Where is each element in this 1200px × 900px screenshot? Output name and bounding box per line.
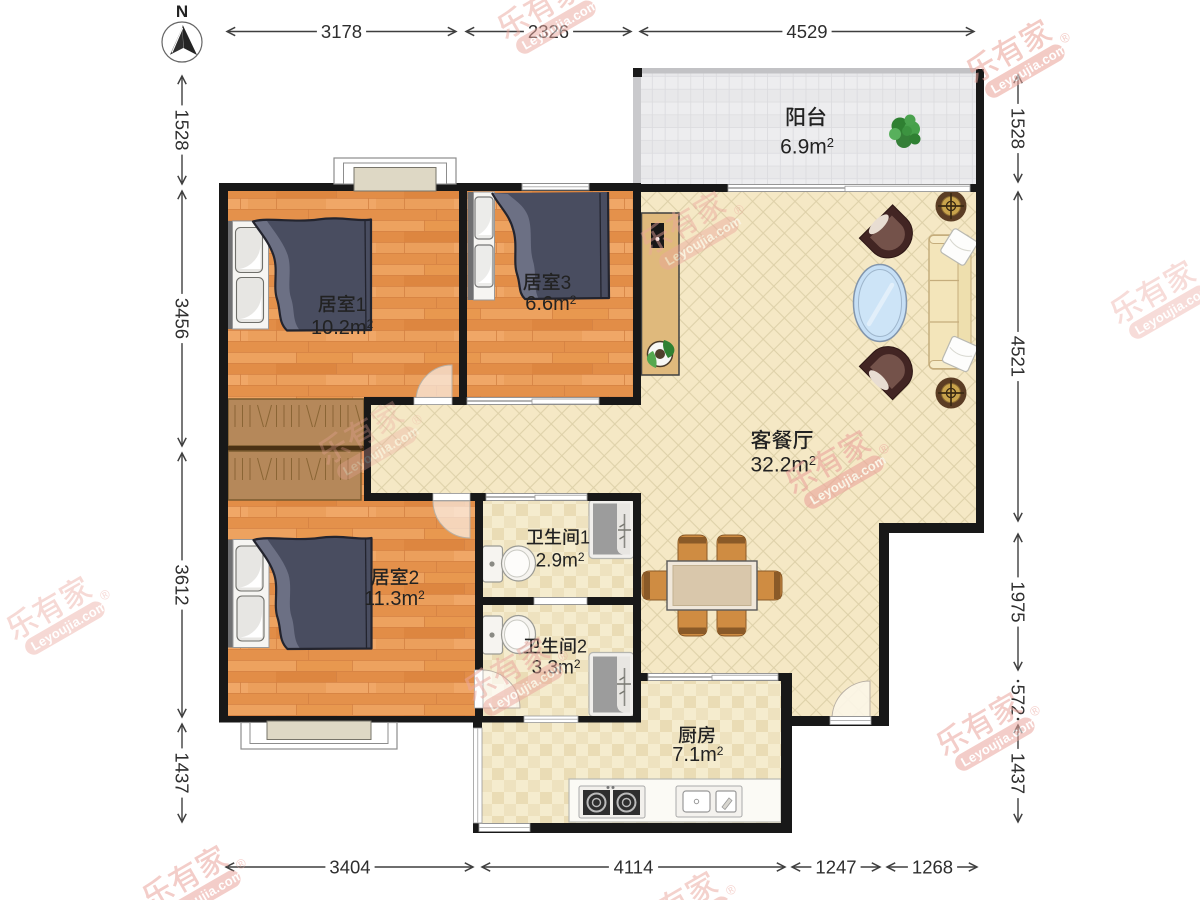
svg-text:1: 1	[356, 295, 367, 316]
svg-text:7.1m2: 7.1m2	[672, 744, 723, 766]
svg-text:6.6m2: 6.6m2	[525, 293, 576, 315]
svg-text:1437: 1437	[1008, 753, 1029, 794]
svg-text:3612: 3612	[172, 564, 193, 605]
svg-text:1268: 1268	[912, 857, 953, 878]
svg-text:4521: 4521	[1008, 336, 1029, 377]
svg-text:3404: 3404	[329, 857, 370, 878]
svg-text:1528: 1528	[1008, 108, 1029, 149]
svg-text:2: 2	[409, 568, 420, 589]
svg-text:3: 3	[561, 273, 572, 294]
svg-text:1247: 1247	[815, 857, 856, 878]
svg-text:3456: 3456	[172, 298, 193, 339]
svg-text:10.2m2: 10.2m2	[311, 317, 374, 339]
svg-text:N: N	[176, 2, 188, 21]
svg-text:11.3m2: 11.3m2	[364, 588, 425, 610]
svg-text:1975: 1975	[1008, 581, 1029, 622]
svg-text:3178: 3178	[321, 21, 362, 42]
svg-text:2: 2	[577, 636, 587, 656]
svg-text:4114: 4114	[614, 857, 654, 878]
svg-text:6.9m2: 6.9m2	[780, 135, 834, 158]
svg-text:1437: 1437	[172, 752, 193, 793]
svg-text:2.9m2: 2.9m2	[536, 550, 585, 572]
svg-text:1: 1	[580, 527, 590, 547]
svg-text:4529: 4529	[786, 21, 827, 42]
svg-text:1528: 1528	[172, 109, 193, 150]
